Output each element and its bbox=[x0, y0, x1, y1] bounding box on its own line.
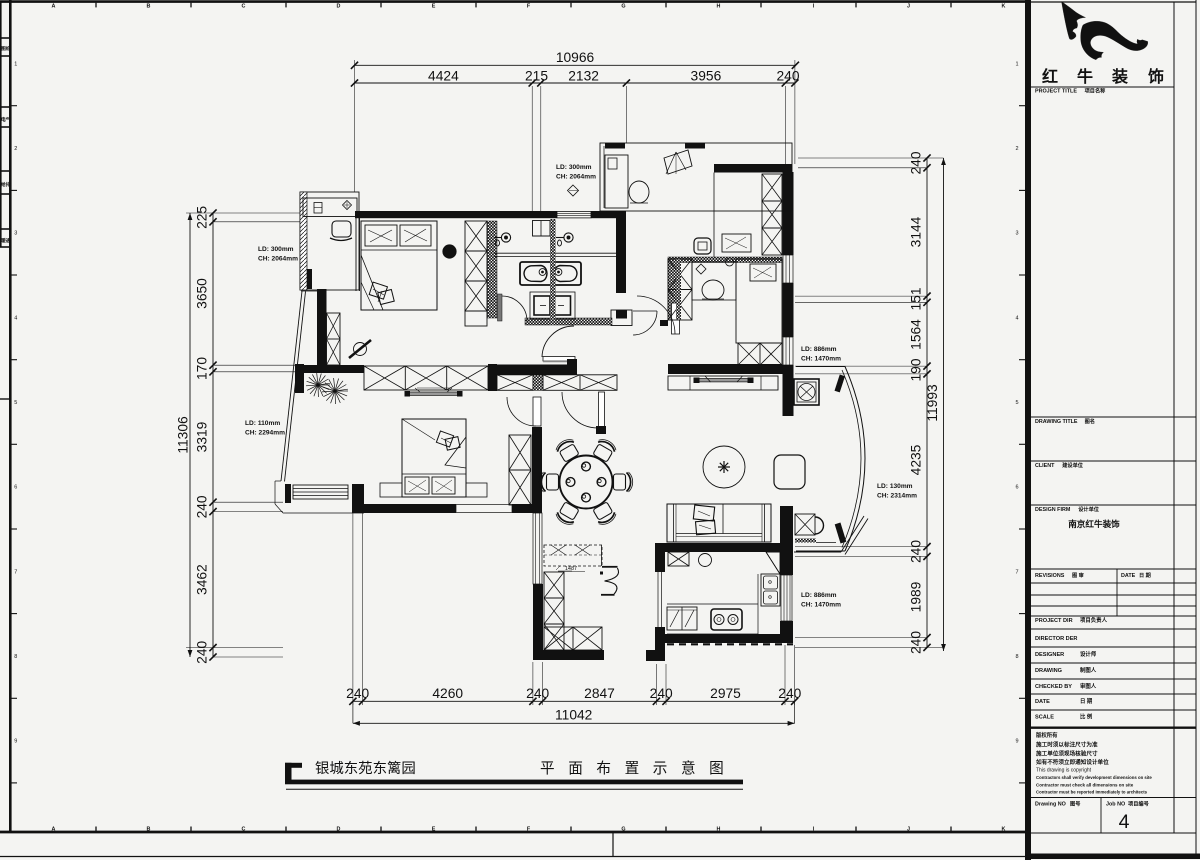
svg-text:190: 190 bbox=[909, 358, 924, 381]
svg-text:5: 5 bbox=[1015, 400, 1018, 406]
svg-text:3144: 3144 bbox=[909, 216, 924, 247]
svg-text:240: 240 bbox=[776, 69, 799, 84]
svg-text:4260: 4260 bbox=[432, 686, 463, 701]
svg-text:施工单位须现场核验尺寸: 施工单位须现场核验尺寸 bbox=[1036, 750, 1098, 758]
svg-text:比 例: 比 例 bbox=[1080, 713, 1093, 721]
svg-text:DRAWING TITLE: DRAWING TITLE bbox=[1035, 419, 1078, 425]
svg-text:Contractor must check all dime: Contractor must check all dimensions on … bbox=[1036, 783, 1134, 788]
svg-text:3319: 3319 bbox=[195, 421, 210, 452]
svg-text:9: 9 bbox=[1015, 739, 1018, 745]
svg-text:Contractor must be reported im: Contractor must be reported immediately … bbox=[1036, 790, 1148, 795]
svg-text:南京红牛装饰: 南京红牛装饰 bbox=[1068, 518, 1120, 529]
svg-text:建设单位: 建设单位 bbox=[1062, 461, 1084, 469]
svg-text:LD: 110mm: LD: 110mm bbox=[245, 420, 280, 427]
svg-text:2: 2 bbox=[1015, 146, 1018, 152]
svg-text:图号: 图号 bbox=[1070, 800, 1080, 808]
svg-text:电气: 电气 bbox=[1, 116, 11, 123]
svg-text:CH: 2294mm: CH: 2294mm bbox=[245, 430, 285, 437]
svg-text:240: 240 bbox=[909, 540, 924, 563]
svg-text:A: A bbox=[52, 4, 56, 10]
svg-text:4235: 4235 bbox=[909, 444, 924, 475]
svg-text:7: 7 bbox=[1015, 569, 1018, 575]
svg-text:PROJECT DIR: PROJECT DIR bbox=[1035, 618, 1073, 624]
svg-text:项目编号: 项目编号 bbox=[1128, 800, 1149, 808]
svg-text:平面布置示意图: 平面布置示意图 bbox=[540, 759, 737, 777]
svg-text:项目名称: 项目名称 bbox=[1085, 87, 1107, 95]
svg-text:240: 240 bbox=[526, 686, 549, 701]
svg-text:215: 215 bbox=[525, 69, 548, 84]
svg-text:151: 151 bbox=[909, 287, 924, 310]
svg-text:牛: 牛 bbox=[1077, 67, 1093, 86]
svg-text:装: 装 bbox=[1111, 67, 1128, 86]
svg-text:3956: 3956 bbox=[691, 69, 722, 84]
svg-text:DRAWING: DRAWING bbox=[1035, 668, 1062, 674]
svg-text:5: 5 bbox=[14, 400, 17, 406]
svg-text:This drawing is copyright: This drawing is copyright bbox=[1036, 768, 1092, 774]
svg-text:如有不符须立即通知设计单位: 如有不符须立即通知设计单位 bbox=[1036, 758, 1109, 766]
svg-text:银城东苑东篱园: 银城东苑东篱园 bbox=[315, 760, 416, 777]
svg-text:CH: 2314mm: CH: 2314mm bbox=[877, 493, 917, 500]
svg-text:日 期: 日 期 bbox=[1139, 571, 1151, 579]
svg-text:9: 9 bbox=[14, 739, 17, 745]
svg-text:DIRECTOR DER: DIRECTOR DER bbox=[1035, 636, 1077, 642]
svg-text:审图人: 审图人 bbox=[1080, 682, 1097, 690]
svg-text:10966: 10966 bbox=[556, 50, 595, 65]
svg-text:3462: 3462 bbox=[195, 564, 210, 595]
svg-text:2: 2 bbox=[14, 146, 17, 152]
svg-text:240: 240 bbox=[195, 640, 210, 663]
svg-text:11042: 11042 bbox=[555, 708, 592, 723]
svg-text:1989: 1989 bbox=[909, 581, 924, 612]
svg-text:DATE: DATE bbox=[1035, 699, 1050, 705]
svg-text:图 审: 图 审 bbox=[1072, 571, 1084, 579]
svg-text:给排: 给排 bbox=[1, 181, 11, 188]
svg-text:J: J bbox=[907, 4, 910, 10]
svg-text:8: 8 bbox=[14, 654, 17, 660]
svg-text:6: 6 bbox=[1015, 485, 1018, 491]
svg-text:PROJECT TITLE: PROJECT TITLE bbox=[1035, 89, 1077, 95]
svg-text:2847: 2847 bbox=[584, 686, 615, 701]
svg-text:设计单位: 设计单位 bbox=[1078, 505, 1100, 513]
svg-text:施工时须以标注尺寸为准: 施工时须以标注尺寸为准 bbox=[1036, 741, 1098, 749]
svg-text:LD: 300mm: LD: 300mm bbox=[258, 246, 294, 253]
svg-text:C: C bbox=[242, 4, 246, 10]
svg-text:240: 240 bbox=[778, 686, 801, 701]
svg-text:图纸: 图纸 bbox=[1, 45, 11, 52]
svg-text:LD: 886mm: LD: 886mm bbox=[801, 592, 837, 599]
svg-text:CH: 1470mm: CH: 1470mm bbox=[801, 356, 841, 363]
svg-text:Job NO: Job NO bbox=[1106, 802, 1125, 808]
svg-text:DESIGN FIRM: DESIGN FIRM bbox=[1035, 507, 1071, 513]
svg-text:红: 红 bbox=[1042, 67, 1058, 86]
svg-text:DESIGNER: DESIGNER bbox=[1035, 652, 1064, 658]
svg-text:LD: 886mm: LD: 886mm bbox=[801, 346, 837, 353]
svg-text:3: 3 bbox=[1015, 231, 1018, 237]
svg-text:E: E bbox=[432, 4, 436, 10]
svg-text:CH: 2064mm: CH: 2064mm bbox=[258, 256, 298, 263]
svg-text:制图人: 制图人 bbox=[1080, 666, 1097, 674]
svg-text:项目负责人: 项目负责人 bbox=[1080, 616, 1108, 624]
svg-text:225: 225 bbox=[195, 206, 210, 229]
svg-text:LD: 130mm: LD: 130mm bbox=[877, 483, 913, 490]
svg-text:8: 8 bbox=[1015, 654, 1018, 660]
svg-text:11306: 11306 bbox=[176, 416, 191, 454]
svg-text:4: 4 bbox=[1015, 315, 1018, 321]
svg-text:H: H bbox=[717, 4, 721, 10]
svg-text:暖通: 暖通 bbox=[1, 237, 11, 244]
svg-text:设计师: 设计师 bbox=[1080, 650, 1097, 658]
svg-text:CHECKED BY: CHECKED BY bbox=[1035, 684, 1072, 690]
svg-text:3: 3 bbox=[14, 231, 17, 237]
svg-text:240: 240 bbox=[909, 151, 924, 174]
svg-text:1564: 1564 bbox=[909, 319, 924, 350]
svg-text:11993: 11993 bbox=[925, 384, 940, 422]
svg-text:CLIENT: CLIENT bbox=[1035, 463, 1055, 469]
svg-text:3650: 3650 bbox=[195, 278, 210, 309]
svg-text:Contractors shall verify devel: Contractors shall verify development dim… bbox=[1036, 775, 1152, 780]
svg-text:2975: 2975 bbox=[710, 686, 741, 701]
svg-text:6: 6 bbox=[14, 485, 17, 491]
svg-text:SCALE: SCALE bbox=[1035, 715, 1054, 721]
svg-text:240: 240 bbox=[346, 686, 369, 701]
svg-text:CH: 1470mm: CH: 1470mm bbox=[801, 602, 841, 609]
svg-text:240: 240 bbox=[650, 686, 673, 701]
svg-text:240: 240 bbox=[909, 631, 924, 654]
svg-text:240: 240 bbox=[195, 495, 210, 518]
svg-text:图名: 图名 bbox=[1085, 417, 1095, 425]
svg-text:4: 4 bbox=[1119, 811, 1130, 833]
svg-text:170: 170 bbox=[195, 357, 210, 380]
svg-text:1: 1 bbox=[1015, 61, 1018, 67]
svg-text:4424: 4424 bbox=[428, 69, 459, 84]
svg-text:DATE: DATE bbox=[1121, 573, 1136, 579]
svg-text:REVISIONS: REVISIONS bbox=[1035, 573, 1065, 579]
svg-text:日 期: 日 期 bbox=[1080, 697, 1093, 705]
svg-text:1: 1 bbox=[14, 61, 17, 67]
svg-text:版权所有: 版权所有 bbox=[1035, 731, 1058, 739]
svg-text:饰: 饰 bbox=[1148, 67, 1164, 86]
svg-text:G: G bbox=[621, 4, 625, 10]
svg-text:CH: 2064mm: CH: 2064mm bbox=[556, 174, 596, 181]
svg-text:K: K bbox=[1002, 4, 1006, 10]
svg-text:2132: 2132 bbox=[568, 69, 599, 84]
svg-text:D: D bbox=[337, 4, 341, 10]
svg-text:Drawing NO: Drawing NO bbox=[1035, 802, 1066, 808]
svg-text:B: B bbox=[147, 4, 151, 10]
svg-text:7: 7 bbox=[14, 569, 17, 575]
svg-text:LD: 300mm: LD: 300mm bbox=[556, 164, 592, 171]
svg-text:4: 4 bbox=[14, 315, 17, 321]
